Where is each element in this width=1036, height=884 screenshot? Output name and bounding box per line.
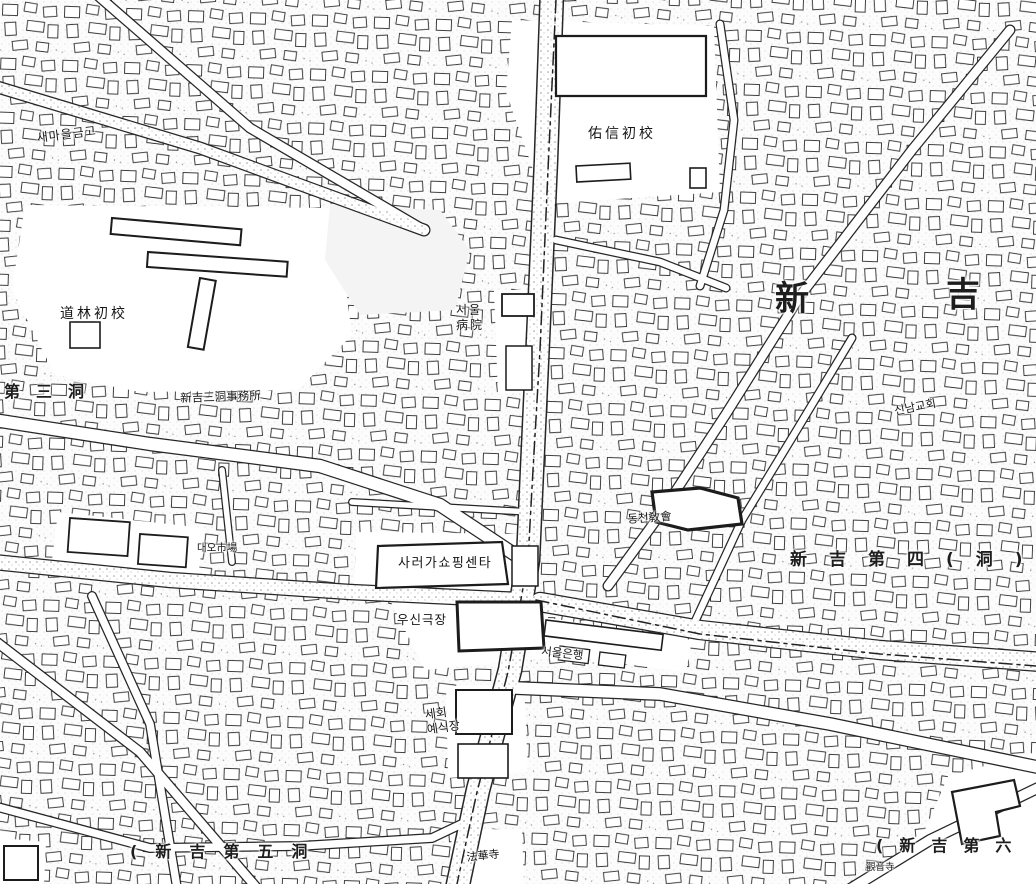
label-district-6: (新吉第六	[876, 836, 1027, 856]
seoul-hospital-building	[502, 294, 534, 316]
seoul-hospital-annex	[506, 346, 532, 390]
label-seoul-hospital: 서울 病院	[456, 303, 484, 333]
label-usin-elementary: 佑信初校	[588, 126, 656, 144]
label-district-gil-big: 吉	[946, 274, 980, 317]
dorim-school-annex	[70, 322, 100, 348]
label-district-5: (新吉第五洞	[130, 842, 325, 862]
market-hall-2	[138, 534, 188, 567]
label-gwaneum-temple: 觀音寺	[866, 862, 895, 874]
usin-school-annex-2	[690, 168, 706, 188]
corner-building-sw	[4, 846, 38, 880]
label-seoul-hospital-line1: 서울	[456, 303, 484, 318]
topographic-map-sheet: 새마을금고 道林初校 佑信初校 서울 病院 新吉三洞事務所 사러가쇼핑센타 우신…	[0, 0, 1036, 884]
usin-school-building	[556, 36, 706, 96]
label-singil3-office: 新吉三洞事務所	[180, 388, 261, 405]
label-district-3: 第三洞	[4, 382, 100, 402]
label-seoul-hospital-line2: 病院	[456, 318, 484, 333]
label-sehoe-wedding-hall: 세회 예식장	[424, 703, 461, 737]
label-sareoga-shopping: 사러가쇼핑센타	[398, 556, 492, 572]
usin-theater-building	[457, 602, 544, 651]
shopping-annex	[512, 546, 538, 586]
market-hall-1	[68, 518, 130, 556]
label-dorim-elementary: 道林初校	[60, 306, 128, 324]
wedding-hall-building-1	[456, 690, 512, 734]
label-district-4: 新吉第四(洞)	[790, 550, 1036, 571]
label-usin-theater: 우신극장	[397, 612, 447, 628]
label-district-sin-big: 新	[775, 278, 809, 321]
label-dongcheon-church: 동천敎會	[627, 509, 672, 526]
usin-school-annex-1	[576, 163, 631, 182]
label-daeo-market: 대오市場	[197, 542, 237, 555]
map-canvas	[0, 0, 1036, 884]
wedding-hall-building-2	[458, 744, 508, 778]
